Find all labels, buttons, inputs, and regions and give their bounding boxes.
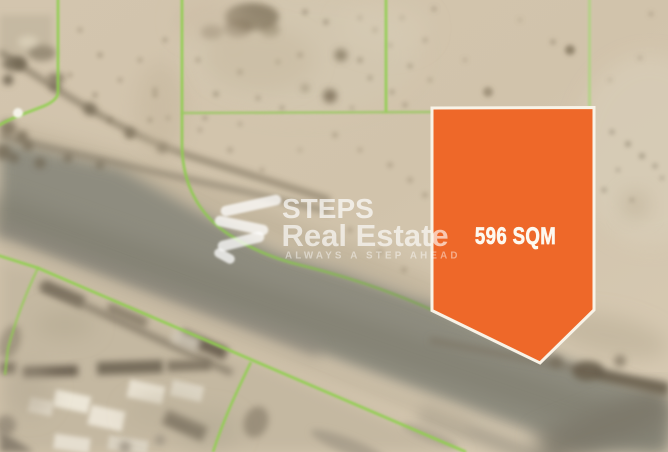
svg-text:ALWAYS A STEP AHEAD: ALWAYS A STEP AHEAD	[285, 251, 461, 262]
svg-text:Real Estate: Real Estate	[282, 218, 449, 253]
svg-text:596 SQM: 596 SQM	[475, 221, 556, 249]
